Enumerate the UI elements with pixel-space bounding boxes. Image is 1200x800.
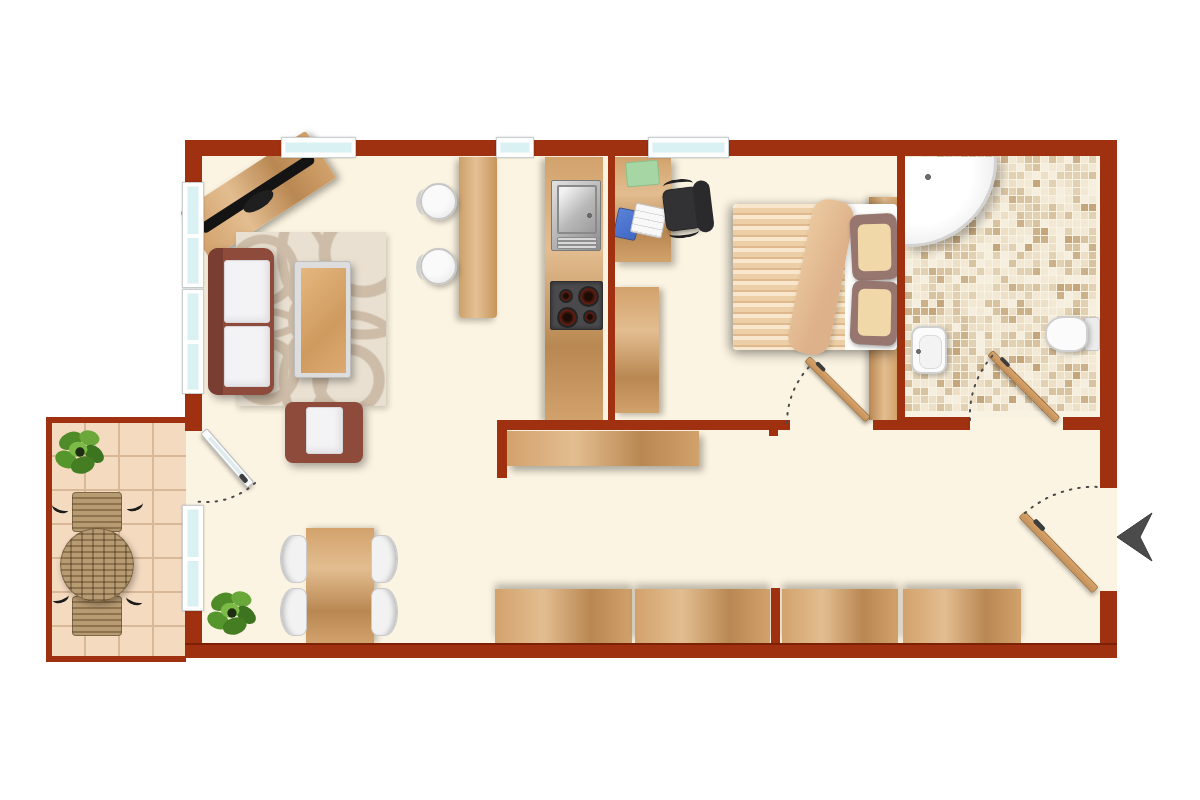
mosaic-tile [969, 308, 976, 315]
mosaic-tile [1017, 212, 1024, 219]
mosaic-tile [937, 404, 944, 411]
mosaic-tile [977, 332, 984, 339]
mosaic-tile [1081, 228, 1088, 235]
mosaic-tile [1033, 340, 1040, 347]
mosaic-tile [1017, 340, 1024, 347]
mosaic-tile [1041, 156, 1048, 163]
mosaic-tile [993, 332, 1000, 339]
mosaic-tile [1041, 196, 1048, 203]
mosaic-tile [1001, 164, 1008, 171]
mosaic-tile [1089, 156, 1096, 163]
mosaic-tile [1049, 356, 1056, 363]
mosaic-tile [1041, 228, 1048, 235]
mosaic-tile [1081, 396, 1088, 403]
mosaic-tile [913, 276, 920, 283]
mosaic-tile [1073, 308, 1080, 315]
mosaic-tile [1081, 356, 1088, 363]
balcony-wall-bottom [46, 656, 186, 662]
window-glass [652, 142, 725, 153]
mosaic-tile [993, 388, 1000, 395]
mosaic-tile [969, 324, 976, 331]
mosaic-tile [1009, 340, 1016, 347]
mosaic-tile [1017, 196, 1024, 203]
mosaic-tile [1065, 228, 1072, 235]
armchair-cushion [306, 407, 343, 454]
mosaic-tile [1009, 156, 1016, 163]
mosaic-tile [921, 396, 928, 403]
bathroom-wall-bottom [1063, 417, 1100, 430]
mosaic-tile [1041, 276, 1048, 283]
mosaic-tile [913, 284, 920, 291]
mosaic-tile [969, 316, 976, 323]
mosaic-tile [913, 252, 920, 259]
mosaic-tile [977, 260, 984, 267]
mosaic-tile [1009, 220, 1016, 227]
window-mullion [185, 234, 201, 238]
mosaic-tile [1081, 300, 1088, 307]
window [648, 137, 729, 158]
mosaic-tile [961, 388, 968, 395]
green-folder [625, 160, 660, 188]
mosaic-tile [1033, 268, 1040, 275]
mosaic-tile [977, 404, 984, 411]
mosaic-tile [1073, 196, 1080, 203]
balcony-chair [72, 596, 122, 636]
mosaic-tile [977, 220, 984, 227]
mosaic-tile [937, 268, 944, 275]
mosaic-tile [913, 292, 920, 299]
mosaic-tile [1049, 236, 1056, 243]
mosaic-tile [1065, 180, 1072, 187]
mosaic-tile [1041, 244, 1048, 251]
mosaic-tile [1049, 212, 1056, 219]
bathroom-wall-bottom [905, 417, 970, 430]
mosaic-tile [1009, 252, 1016, 259]
mosaic-tile [1033, 332, 1040, 339]
sink-drainer [557, 237, 597, 249]
mosaic-tile [1049, 228, 1056, 235]
mosaic-tile [1041, 300, 1048, 307]
mosaic-tile [1025, 244, 1032, 251]
mosaic-tile [953, 260, 960, 267]
mosaic-tile [953, 396, 960, 403]
mosaic-tile [1009, 204, 1016, 211]
mosaic-tile [905, 372, 912, 379]
hall-plant [204, 584, 260, 642]
mosaic-tile [1073, 284, 1080, 291]
mosaic-tile [929, 292, 936, 299]
sofa-cushion [224, 326, 270, 387]
mosaic-tile [969, 292, 976, 299]
mosaic-tile [1065, 164, 1072, 171]
mosaic-tile [929, 260, 936, 267]
mosaic-tile [1073, 396, 1080, 403]
mosaic-tile [977, 268, 984, 275]
mosaic-tile [921, 308, 928, 315]
mosaic-tile [905, 324, 912, 331]
mosaic-tile [1025, 284, 1032, 291]
mosaic-tile [921, 404, 928, 411]
mosaic-tile [1025, 204, 1032, 211]
mosaic-tile [1081, 380, 1088, 387]
mosaic-tile [961, 244, 968, 251]
mosaic-tile [1025, 348, 1032, 355]
mosaic-tile [1001, 292, 1008, 299]
mosaic-tile [1081, 188, 1088, 195]
mosaic-tile [1033, 292, 1040, 299]
mosaic-tile [961, 276, 968, 283]
mosaic-tile [1073, 188, 1080, 195]
mosaic-tile [1049, 156, 1056, 163]
mosaic-tile [985, 308, 992, 315]
mosaic-tile [1009, 284, 1016, 291]
mosaic-tile [985, 388, 992, 395]
mosaic-tile [961, 236, 968, 243]
mosaic-tile [1017, 284, 1024, 291]
mosaic-tile [1057, 292, 1064, 299]
stove-cooktop [550, 281, 603, 330]
mosaic-tile [921, 284, 928, 291]
mosaic-tile [945, 396, 952, 403]
mosaic-tile [953, 292, 960, 299]
sofa-cushion [224, 260, 270, 323]
mosaic-tile [913, 396, 920, 403]
coffee-table [294, 261, 351, 378]
mosaic-tile [1065, 292, 1072, 299]
mosaic-tile [1081, 388, 1088, 395]
mosaic-tile [961, 348, 968, 355]
mosaic-tile [1025, 156, 1032, 163]
mosaic-tile [945, 404, 952, 411]
mosaic-tile [993, 396, 1000, 403]
mosaic-tile [1025, 196, 1032, 203]
cabinet-divider-stub [771, 588, 780, 643]
mosaic-tile [1001, 308, 1008, 315]
mosaic-tile [937, 300, 944, 307]
mosaic-tile [1065, 388, 1072, 395]
mosaic-tile [977, 228, 984, 235]
mosaic-tile [945, 316, 952, 323]
mosaic-tile [1073, 220, 1080, 227]
mosaic-tile [1089, 236, 1096, 243]
mosaic-tile [1025, 212, 1032, 219]
mosaic-tile [1041, 308, 1048, 315]
mosaic-tile [969, 380, 976, 387]
mosaic-tile [1033, 164, 1040, 171]
mosaic-tile [1017, 332, 1024, 339]
mosaic-tile [1009, 172, 1016, 179]
mosaic-tile [1065, 396, 1072, 403]
mosaic-tile [1033, 284, 1040, 291]
mosaic-tile [993, 228, 1000, 235]
bidet [911, 326, 947, 374]
mosaic-tile [1081, 276, 1088, 283]
mosaic-tile [1081, 364, 1088, 371]
mosaic-tile [1049, 188, 1056, 195]
mosaic-tile [1025, 188, 1032, 195]
mosaic-tile [921, 380, 928, 387]
mosaic-tile [1017, 396, 1024, 403]
mosaic-tile [993, 292, 1000, 299]
mosaic-tile [985, 204, 992, 211]
mosaic-tile [945, 300, 952, 307]
mosaic-tile [1017, 172, 1024, 179]
mosaic-tile [977, 348, 984, 355]
mosaic-tile [977, 284, 984, 291]
mosaic-tile [993, 308, 1000, 315]
mosaic-tile [1033, 204, 1040, 211]
mosaic-tile [1025, 332, 1032, 339]
mosaic-tile [1001, 340, 1008, 347]
mosaic-tile [1001, 324, 1008, 331]
mosaic-tile [1025, 164, 1032, 171]
mosaic-tile [1025, 300, 1032, 307]
mosaic-tile [961, 308, 968, 315]
mosaic-tile [961, 404, 968, 411]
mosaic-tile [1041, 388, 1048, 395]
mosaic-tile [961, 252, 968, 259]
mosaic-tile [1049, 276, 1056, 283]
mosaic-tile [1009, 332, 1016, 339]
mosaic-tile [1081, 244, 1088, 251]
mosaic-tile [953, 372, 960, 379]
mosaic-tile [913, 316, 920, 323]
mosaic-tile [1025, 172, 1032, 179]
mosaic-tile [1057, 220, 1064, 227]
mosaic-tile [969, 244, 976, 251]
mosaic-tile [1049, 252, 1056, 259]
mosaic-tile [1057, 356, 1064, 363]
mosaic-tile [969, 332, 976, 339]
coffee-table-top [301, 268, 346, 373]
mosaic-tile [985, 324, 992, 331]
mosaic-tile [1089, 268, 1096, 275]
interior-wall-bathroom [897, 156, 905, 430]
mosaic-tile [1089, 196, 1096, 203]
mosaic-tile [1049, 364, 1056, 371]
mosaic-tile [993, 188, 1000, 195]
mosaic-tile [977, 356, 984, 363]
mosaic-tile [1025, 316, 1032, 323]
toilet [1045, 316, 1100, 352]
mosaic-tile [977, 252, 984, 259]
mosaic-tile [945, 276, 952, 283]
mosaic-tile [905, 300, 912, 307]
mosaic-tile [937, 260, 944, 267]
mosaic-tile [953, 276, 960, 283]
mosaic-tile [1065, 252, 1072, 259]
mosaic-tile [977, 244, 984, 251]
window-glass [285, 142, 352, 153]
mosaic-tile [1057, 244, 1064, 251]
mosaic-tile [993, 212, 1000, 219]
mosaic-tile [1081, 172, 1088, 179]
mosaic-tile [1057, 396, 1064, 403]
mosaic-tile [1025, 236, 1032, 243]
hall-sideboard [507, 431, 699, 466]
mosaic-tile [1009, 188, 1016, 195]
mosaic-tile [1081, 372, 1088, 379]
mosaic-tile [1049, 396, 1056, 403]
mosaic-tile [1041, 220, 1048, 227]
mosaic-tile [1001, 284, 1008, 291]
mosaic-tile [1089, 356, 1096, 363]
mosaic-tile [945, 244, 952, 251]
mosaic-tile [1049, 308, 1056, 315]
mosaic-tile [961, 260, 968, 267]
mosaic-tile [1081, 164, 1088, 171]
mosaic-tile [1073, 244, 1080, 251]
mosaic-tile [1033, 236, 1040, 243]
mosaic-tile [953, 348, 960, 355]
mosaic-tile [1009, 300, 1016, 307]
mosaic-tile [1049, 268, 1056, 275]
mosaic-tile [913, 388, 920, 395]
mosaic-tile [929, 252, 936, 259]
mosaic-tile [1025, 308, 1032, 315]
mosaic-tile [1073, 292, 1080, 299]
mosaic-tile [1057, 308, 1064, 315]
mosaic-tile [1049, 180, 1056, 187]
mosaic-tile [937, 284, 944, 291]
mosaic-tile [913, 380, 920, 387]
bar-stool [420, 183, 457, 220]
mosaic-tile [1009, 316, 1016, 323]
mosaic-tile [1033, 348, 1040, 355]
mosaic-tile [937, 292, 944, 299]
mosaic-tile [1073, 372, 1080, 379]
mosaic-tile [1073, 212, 1080, 219]
mosaic-tile [1065, 236, 1072, 243]
mosaic-tile [1009, 212, 1016, 219]
mosaic-tile [913, 268, 920, 275]
mosaic-tile [1057, 260, 1064, 267]
mosaic-tile [921, 276, 928, 283]
mosaic-tile [1001, 380, 1008, 387]
mosaic-tile [993, 380, 1000, 387]
mosaic-tile [905, 276, 912, 283]
mosaic-tile [1049, 284, 1056, 291]
mosaic-tile [977, 276, 984, 283]
mosaic-tile [1065, 212, 1072, 219]
mosaic-tile [1033, 188, 1040, 195]
mosaic-tile [1025, 404, 1032, 411]
window-mullion [185, 557, 201, 561]
mosaic-tile [985, 260, 992, 267]
mosaic-tile [921, 252, 928, 259]
mosaic-tile [961, 340, 968, 347]
mosaic-tile [1001, 172, 1008, 179]
mosaic-tile [969, 228, 976, 235]
mosaic-tile [977, 388, 984, 395]
mosaic-tile [1017, 220, 1024, 227]
mosaic-tile [1049, 388, 1056, 395]
mosaic-tile [1081, 292, 1088, 299]
burner-small [559, 289, 573, 303]
mosaic-tile [1001, 212, 1008, 219]
mosaic-tile [1089, 180, 1096, 187]
mosaic-tile [1057, 268, 1064, 275]
mosaic-tile [905, 292, 912, 299]
mosaic-tile [1057, 204, 1064, 211]
mosaic-tile [1001, 204, 1008, 211]
mosaic-tile [953, 404, 960, 411]
table-slat-marks [61, 529, 133, 601]
mosaic-tile [977, 300, 984, 307]
kitchen-sink [551, 180, 601, 251]
mosaic-tile [1033, 300, 1040, 307]
mosaic-tile [1073, 276, 1080, 283]
dining-chair [371, 535, 398, 583]
outer-wall-bottom [185, 643, 1117, 658]
mosaic-tile [969, 404, 976, 411]
mosaic-tile [1025, 252, 1032, 259]
mosaic-tile [985, 212, 992, 219]
mosaic-tile [1049, 204, 1056, 211]
mosaic-tile [1057, 372, 1064, 379]
mosaic-tile [921, 316, 928, 323]
mosaic-tile [929, 276, 936, 283]
mosaic-tile [1025, 180, 1032, 187]
mosaic-tile [1009, 268, 1016, 275]
mosaic-tile [1081, 196, 1088, 203]
mosaic-tile [953, 268, 960, 275]
mosaic-tile [993, 404, 1000, 411]
mosaic-tile [1009, 180, 1016, 187]
window [281, 137, 356, 158]
mosaic-tile [1073, 268, 1080, 275]
mosaic-tile [961, 284, 968, 291]
mosaic-tile [1025, 372, 1032, 379]
window-mullion [185, 340, 201, 344]
mosaic-tile [1017, 228, 1024, 235]
mosaic-tile [985, 268, 992, 275]
mosaic-tile [1017, 204, 1024, 211]
mosaic-tile [1073, 260, 1080, 267]
mosaic-tile [1073, 236, 1080, 243]
burner-large [557, 307, 578, 328]
mosaic-tile [1049, 244, 1056, 251]
mosaic-tile [1081, 180, 1088, 187]
mosaic-tile [969, 276, 976, 283]
mosaic-tile [1065, 156, 1072, 163]
mosaic-tile [1049, 172, 1056, 179]
mosaic-tile [969, 340, 976, 347]
mosaic-tile [969, 260, 976, 267]
mosaic-tile [977, 316, 984, 323]
mosaic-tile [929, 316, 936, 323]
mosaic-tile [1025, 276, 1032, 283]
mosaic-tile [1073, 204, 1080, 211]
mosaic-tile [1057, 388, 1064, 395]
mosaic-tile [1081, 156, 1088, 163]
mosaic-tile [1041, 180, 1048, 187]
shower-drain [925, 174, 931, 180]
mosaic-tile [961, 324, 968, 331]
sink-drain [587, 213, 592, 218]
mosaic-tile [1041, 236, 1048, 243]
mosaic-tile [1089, 292, 1096, 299]
window [182, 182, 204, 288]
mosaic-tile [905, 404, 912, 411]
mosaic-tile [1089, 204, 1096, 211]
sofa-backrest [208, 248, 223, 395]
bidet-basin [919, 335, 942, 369]
mosaic-tile [985, 396, 992, 403]
mosaic-tile [1041, 172, 1048, 179]
mosaic-tile [1089, 284, 1096, 291]
mosaic-tile [1025, 324, 1032, 331]
